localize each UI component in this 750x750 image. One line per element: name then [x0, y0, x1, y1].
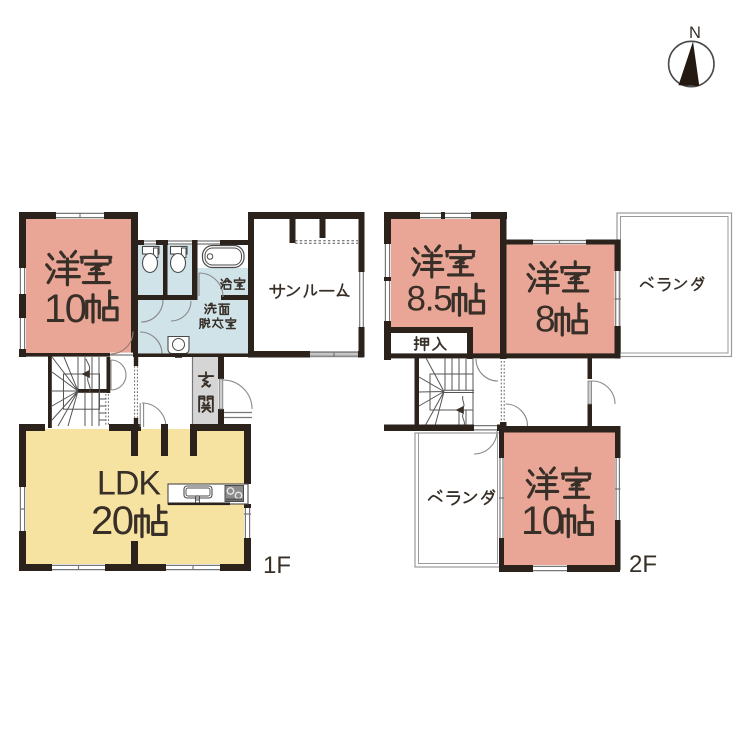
svg-text:2F: 2F — [629, 551, 657, 578]
svg-text:10: 10 — [521, 499, 563, 543]
svg-text:N: N — [689, 24, 701, 42]
svg-text:8: 8 — [535, 299, 556, 340]
svg-text:LDK: LDK — [97, 465, 161, 503]
svg-text:1F: 1F — [263, 552, 291, 579]
svg-text:20: 20 — [91, 499, 133, 543]
svg-text:10: 10 — [44, 287, 86, 331]
svg-text:8.5: 8.5 — [407, 280, 452, 319]
